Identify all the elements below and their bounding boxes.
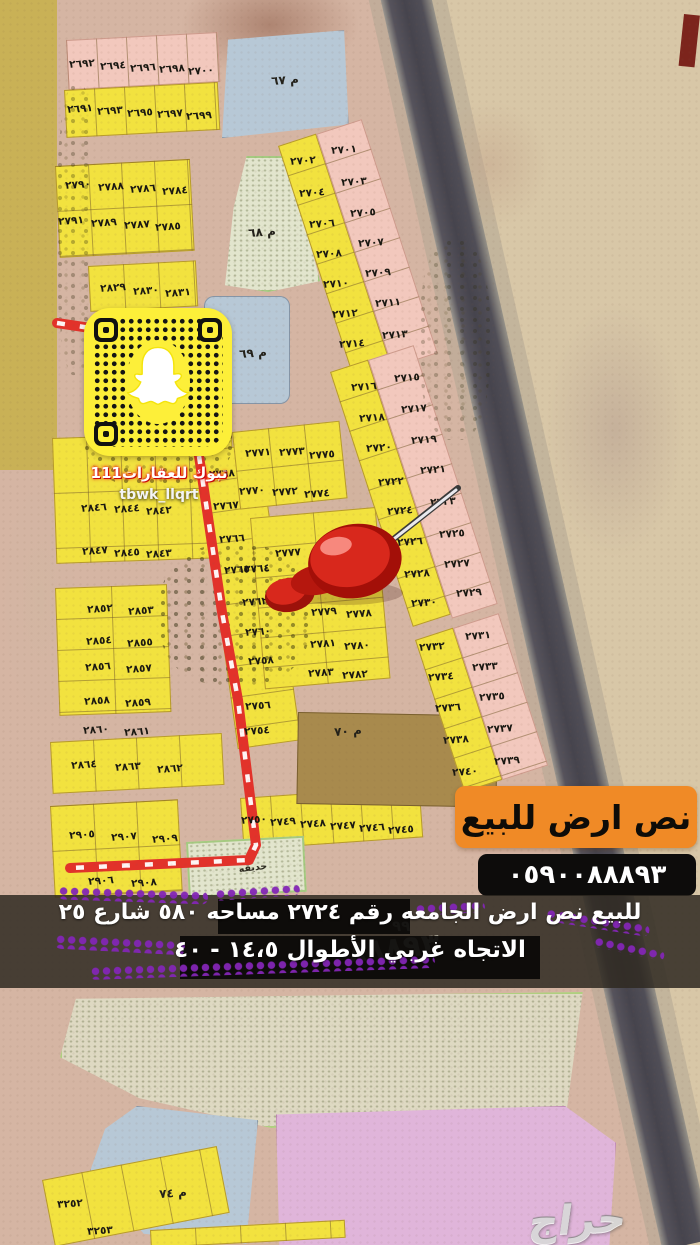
plot-label: ٢٨٤٥ bbox=[114, 546, 140, 560]
haraj-watermark: حراج bbox=[526, 1193, 700, 1245]
plot-label: ٢٧٨٣ bbox=[308, 666, 334, 680]
plot-label: ٢٧٣٢ bbox=[419, 640, 445, 654]
plot-label: ٢٧٨٥ bbox=[155, 220, 181, 234]
block-label: م ٧٠ bbox=[334, 723, 363, 739]
plot-label: ٢٧٢٨ bbox=[404, 567, 430, 581]
plot-label: ٢٨٤٢ bbox=[146, 504, 172, 518]
plot-label: ٢٨٥٩ bbox=[125, 696, 151, 710]
plot-label: ٢٧١٠ bbox=[323, 277, 349, 291]
plot-label: ٢٧٣٨ bbox=[443, 733, 469, 747]
plot-label: ٢٧٤٨ bbox=[300, 817, 326, 831]
plot-label: ٢٧٢٠ bbox=[366, 441, 392, 455]
plot-label: ٢٧٨٦ bbox=[130, 182, 156, 196]
plot-label: ٢٧٣١ bbox=[465, 629, 491, 643]
plot-label: ٢٧١٣ bbox=[382, 328, 408, 342]
plot-label: ٢٧١١ bbox=[375, 296, 401, 310]
plot-label: ٢٧٣٩ bbox=[494, 754, 520, 768]
plot-label: ٢٧٠٦ bbox=[309, 217, 335, 231]
plot-label: ٢٧٢٧ bbox=[444, 557, 470, 571]
qr-finder-icon bbox=[94, 318, 118, 342]
plot-label: ٢٧٠٨ bbox=[316, 247, 342, 261]
plot-label: ٢٨٥٦ bbox=[85, 660, 111, 674]
qr-finder-icon bbox=[198, 318, 222, 342]
account-name: تبوك للعقارات111 bbox=[74, 464, 244, 482]
plot-label: ٢٨٥٢ bbox=[87, 602, 113, 616]
plot-label: ٢٧٣٤ bbox=[428, 670, 454, 684]
plot-label: ٢٧٠١ bbox=[331, 143, 357, 157]
plot-label: ٢٨٥٥ bbox=[127, 636, 153, 650]
plot-label: ٢٧٤٥ bbox=[388, 823, 414, 837]
qr-finder-icon bbox=[94, 422, 118, 446]
plot-label: ٢٧١٦ bbox=[351, 380, 377, 394]
plot-label: ٢٧٢٩ bbox=[456, 586, 482, 600]
block-label: م ٦٩ bbox=[239, 345, 268, 361]
plot-label: ٢٧٨٤ bbox=[162, 184, 188, 198]
caption-line-2: الاتجاه غربي الأطوال ١٤،٥ - ٤٠ bbox=[0, 937, 700, 963]
plot-label: ٢٧٦٢ bbox=[242, 595, 268, 609]
plot-label: ٢٧٣٧ bbox=[487, 722, 513, 736]
map-block bbox=[55, 159, 195, 258]
plot-label: ٢٨٤٧ bbox=[82, 544, 108, 558]
plot-label: ٢٧٣٣ bbox=[472, 660, 498, 674]
plot-label: ٢٧٧٧ bbox=[275, 546, 301, 560]
plot-label: ٢٧٠٥ bbox=[350, 206, 376, 220]
plot-label: ٢٧٧٢ bbox=[272, 485, 298, 499]
plot-label: ٢٧٨٠ bbox=[344, 639, 370, 653]
plot-label: ٢٧٨٨ bbox=[98, 180, 124, 194]
plot-label: ٢٧٩٠ bbox=[65, 178, 91, 192]
plot-label: ٢٧١٥ bbox=[394, 371, 420, 385]
plot-label: ٢٧٢٤ bbox=[387, 504, 413, 518]
plot-label: ٢٧٢٥ bbox=[439, 527, 465, 541]
plot-label: ٢٩٠٨ bbox=[131, 876, 157, 890]
plot-label: ٢٧٨٩ bbox=[91, 216, 117, 230]
plot-label: ٢٧٠٠ bbox=[188, 64, 214, 78]
map-block bbox=[0, 0, 57, 470]
plot-label: ٢٧٧٨ bbox=[346, 607, 372, 621]
plot-label: ٢٦٩٦ bbox=[130, 61, 156, 75]
plot-label: ٢٧٨١ bbox=[310, 637, 336, 651]
plot-label: ٢٧٧٣ bbox=[279, 445, 305, 459]
plot-label: ٢٨٤٣ bbox=[146, 547, 172, 561]
plot-label: ٢٧٠٣ bbox=[341, 175, 367, 189]
block-label: م ٦٧ bbox=[271, 72, 300, 88]
plot-label: ٢٧٧٦ bbox=[319, 550, 345, 564]
caption-line-1: للبيع نص ارض الجامعه رقم ٢٧٢٤ مساحه ٥٨٠ … bbox=[0, 900, 700, 925]
listing-image: ٢٦٩٢٢٦٩٤٢٦٩٦٢٦٩٨٢٧٠٠٢٦٩١٢٦٩٣٢٦٩٥٢٦٩٧٢٦٩٩… bbox=[0, 0, 700, 1245]
plot-label: ٢٧٢٦ bbox=[397, 535, 423, 549]
plot-label: ٢٩٠٦ bbox=[88, 874, 114, 888]
plot-label: ٢٨٥٨ bbox=[84, 694, 110, 708]
plot-label: ٢٧٦٠ bbox=[245, 625, 271, 639]
plot-label: ٢٧٨٧ bbox=[124, 218, 150, 232]
plot-label: ٢٦٩٢ bbox=[69, 57, 95, 71]
plot-label: ٢٦٩١ bbox=[67, 102, 93, 116]
plot-label: ٢٨٥٤ bbox=[86, 634, 112, 648]
plot-label: ٢٧١٧ bbox=[401, 402, 427, 416]
plot-label: ٢٨٣١ bbox=[165, 286, 191, 300]
plot-label: ٢٨٥٣ bbox=[128, 604, 154, 618]
plot-label: ٢٧٣٦ bbox=[435, 701, 461, 715]
plot-label: ٢٧٠٢ bbox=[290, 154, 316, 168]
plot-label: ٢٧٥٤ bbox=[244, 724, 270, 738]
plot-label: ٢٧٢١ bbox=[420, 463, 446, 477]
snapcode-qr[interactable] bbox=[84, 308, 232, 456]
plot-label: ٢٨٦١ bbox=[124, 725, 150, 739]
plot-label: ٢٨٦٠ bbox=[83, 723, 109, 737]
plot-label: ٢٧٠٤ bbox=[299, 186, 325, 200]
plot-label: ٢٧٤٧ bbox=[330, 819, 356, 833]
plot-label: ٢٧١٤ bbox=[339, 337, 365, 351]
plot-label: ٢٧٤٠ bbox=[452, 765, 478, 779]
map-block bbox=[55, 584, 171, 716]
plot-label: ٢٧٥٦ bbox=[245, 699, 271, 713]
sale-banner: نص ارض للبيع bbox=[455, 786, 697, 848]
plot-label: ٢٨٤٤ bbox=[114, 502, 140, 516]
plot-label: ٢٧٣٥ bbox=[479, 690, 505, 704]
plot-label: ٢٧٠٩ bbox=[365, 266, 391, 280]
plot-label: ٢٧١٢ bbox=[332, 307, 358, 321]
plot-label: ٢٧٥٠ bbox=[241, 813, 267, 827]
plot-label: ٢٨٤٦ bbox=[81, 501, 107, 515]
plot-label: ٢٦٩٩ bbox=[186, 109, 212, 123]
block-label: م ٦٨ bbox=[248, 224, 277, 240]
phone-number-badge[interactable]: ٠٥٩٠٠٨٨٨٩٣ bbox=[478, 854, 696, 896]
plot-label: ٢٧٩١ bbox=[58, 214, 84, 228]
plot-label: ٢٧٢٢ bbox=[378, 475, 404, 489]
plot-label: ٢٨٦٤ bbox=[71, 758, 97, 772]
plot-label: ٢٧٢٣ bbox=[430, 495, 456, 509]
plot-label: ٢٧٨٢ bbox=[342, 668, 368, 682]
plot-label: ٢٦٩٧ bbox=[157, 107, 183, 121]
plot-label: ٢٦٩٨ bbox=[159, 62, 185, 76]
snapchat-ghost-icon bbox=[122, 336, 194, 428]
plot-label: ٢٧٤٩ bbox=[270, 815, 296, 829]
plot-label: ٢٩٠٧ bbox=[111, 830, 137, 844]
plot-label: ٢٨٦٢ bbox=[157, 762, 183, 776]
plot-label: ٢٧٥٨ bbox=[248, 654, 274, 668]
plot-label: ٢٧٧٩ bbox=[311, 605, 337, 619]
plot-label: ٢٩٠٩ bbox=[152, 832, 178, 846]
plot-label: ٢٩٠٥ bbox=[69, 828, 95, 842]
plot-label: ٢٧٧٤ bbox=[304, 487, 330, 501]
plot-label: ٢٧٤٦ bbox=[359, 821, 385, 835]
plot-label: ٢٧٧١ bbox=[245, 446, 271, 460]
plot-label: ٢٦٩٣ bbox=[97, 104, 123, 118]
plot-label: ٢٨٦٣ bbox=[115, 760, 141, 774]
plot-label: ٢٨٢٩ bbox=[100, 281, 126, 295]
plot-label: ٢٧٠٧ bbox=[358, 236, 384, 250]
plot-label: ٣٢٥٢ bbox=[57, 1197, 83, 1211]
map-block bbox=[50, 799, 183, 898]
plot-label: ٢٧١٨ bbox=[359, 411, 385, 425]
plot-label: ٢٧٧٥ bbox=[309, 448, 335, 462]
plot-label: ٢٦٩٤ bbox=[100, 59, 126, 73]
account-handle: tbwk_llqrt bbox=[74, 487, 244, 503]
plot-label: ٣٢٥٣ bbox=[87, 1224, 113, 1238]
plot-label: ٢٦٩٥ bbox=[127, 106, 153, 120]
plot-label: ٢٨٣٠ bbox=[133, 284, 159, 298]
plot-label: ٢٧٦٦ bbox=[219, 532, 245, 546]
plot-map: ٢٦٩٢٢٦٩٤٢٦٩٦٢٦٩٨٢٧٠٠٢٦٩١٢٦٩٣٢٦٩٥٢٦٩٧٢٦٩٩… bbox=[0, 0, 700, 1245]
plot-label: ٢٧١٩ bbox=[411, 433, 437, 447]
caption-bar: ٨٨٨٩٣ ٩٩ للبيع نص ارض الجامعه رقم ٢٧٢٤ م… bbox=[0, 895, 700, 988]
map-block bbox=[679, 14, 700, 67]
plot-label: ٢٨٥٧ bbox=[126, 662, 152, 676]
plot-label: ٢٧٣٠ bbox=[411, 596, 437, 610]
plot-label: ٢٧٦٤ bbox=[244, 562, 270, 576]
block-label: م ٧٤ bbox=[159, 1185, 188, 1201]
